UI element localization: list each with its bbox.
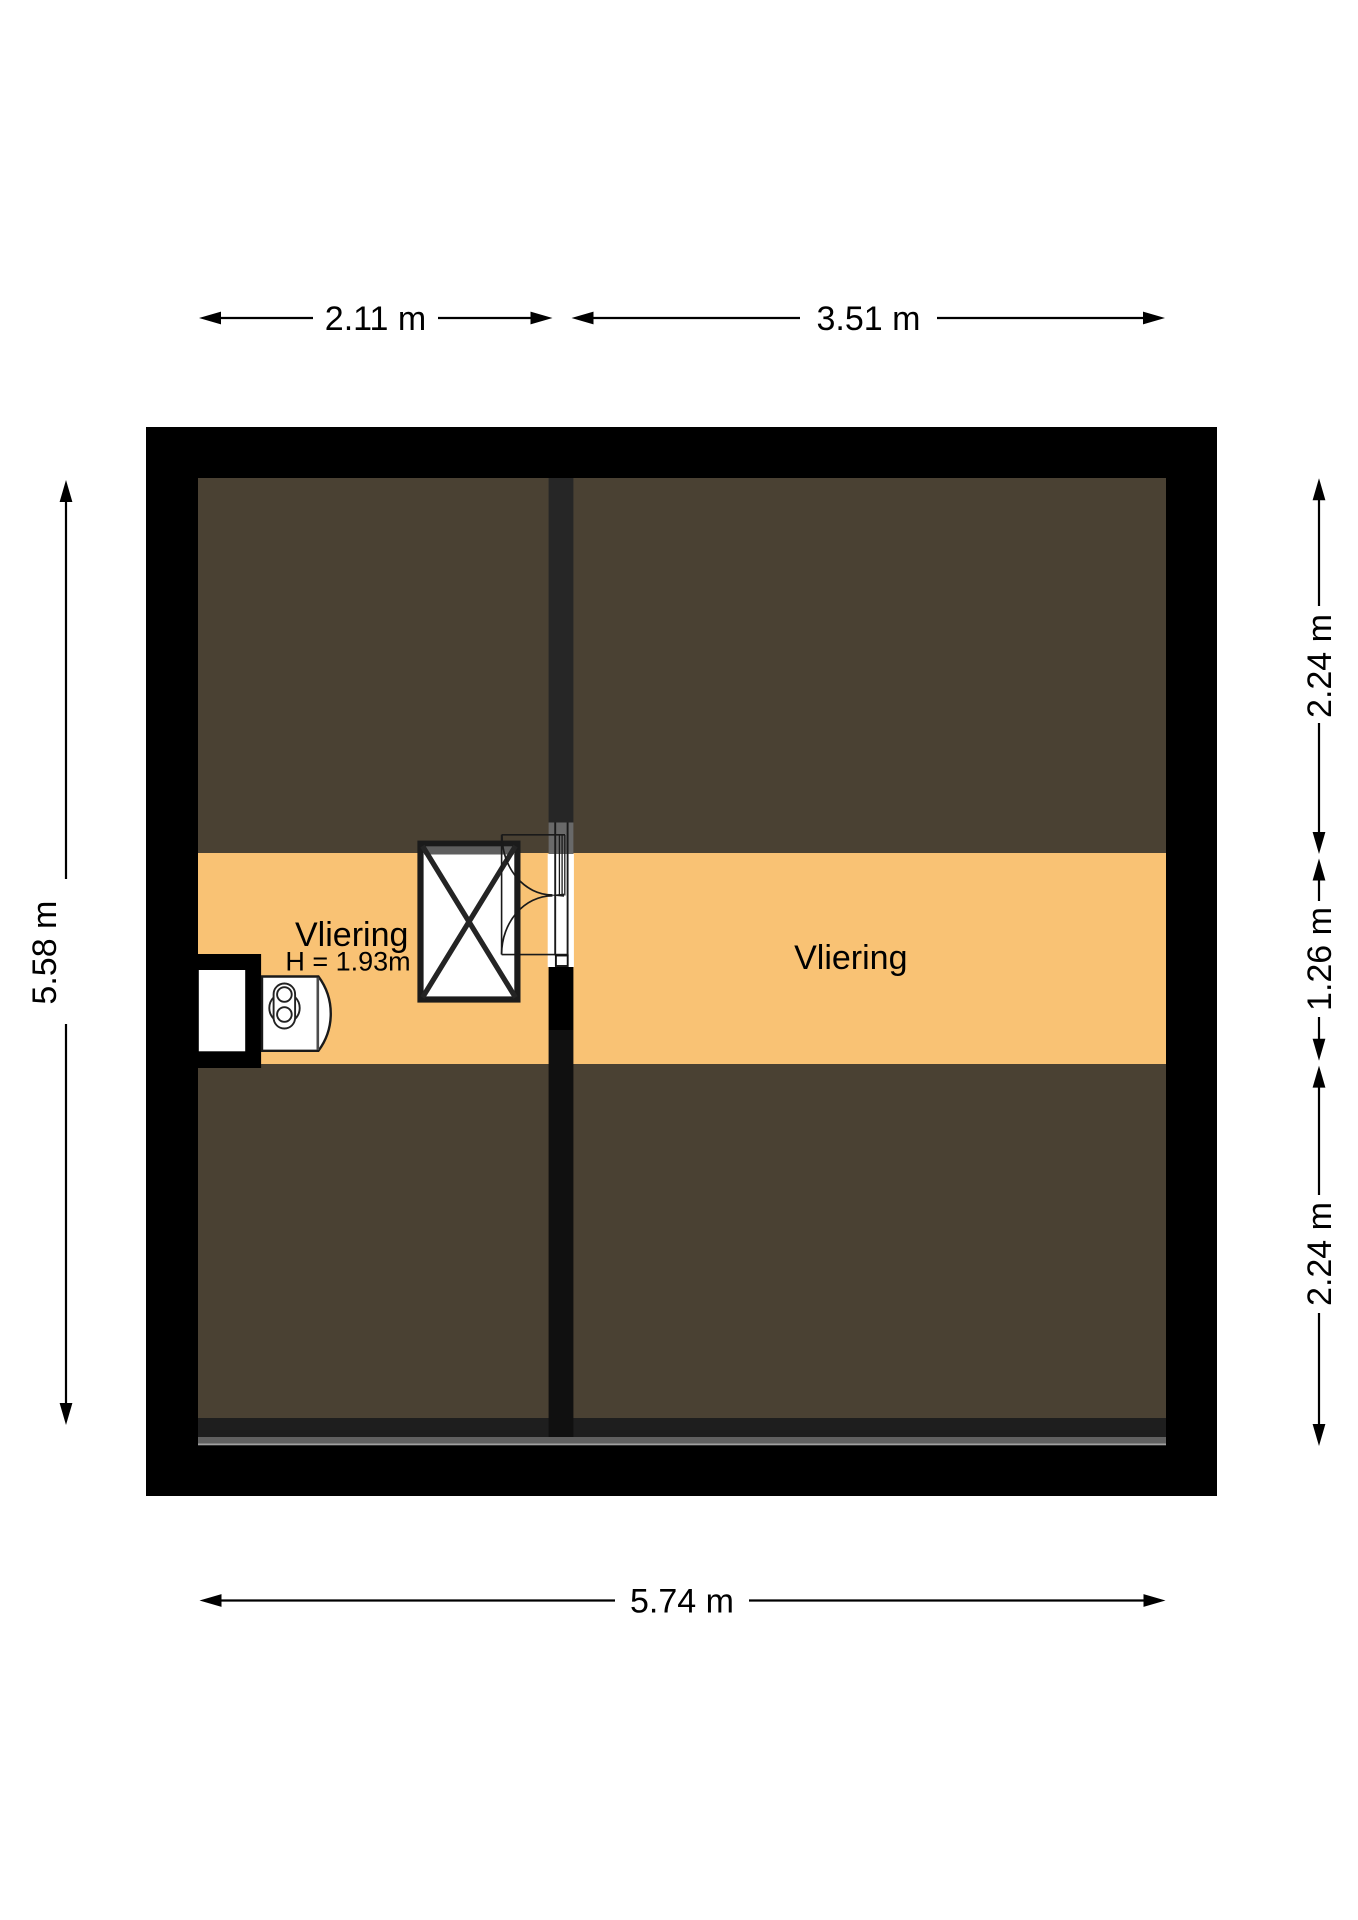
svg-text:5.74 m: 5.74 m — [630, 1583, 734, 1621]
svg-text:2.24 m: 2.24 m — [1301, 614, 1339, 718]
svg-text:H = 1.93m: H = 1.93m — [285, 947, 410, 977]
svg-text:3.51 m: 3.51 m — [817, 300, 921, 338]
svg-text:2.24 m: 2.24 m — [1301, 1202, 1339, 1306]
svg-text:2.11 m: 2.11 m — [325, 300, 426, 338]
svg-text:1.26 m: 1.26 m — [1301, 907, 1339, 1011]
svg-text:5.58 m: 5.58 m — [26, 901, 64, 1005]
svg-text:Vliering: Vliering — [794, 939, 907, 977]
